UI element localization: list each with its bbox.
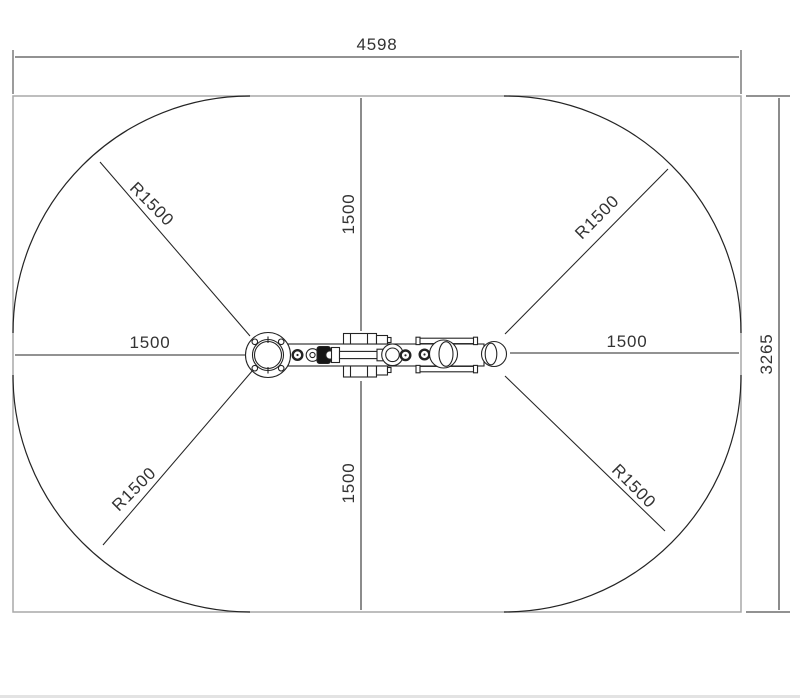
radius-line	[505, 169, 668, 334]
dimension-clearance-top: 1500	[339, 98, 361, 331]
dimension-clearance-left: 1500	[15, 333, 247, 355]
radius-label: R1500	[108, 463, 160, 515]
overall-width-label: 4598	[356, 35, 397, 54]
end-cap-ring	[482, 342, 507, 367]
overall-height-label: 3265	[757, 333, 776, 374]
clamp-block-top	[344, 334, 392, 345]
radius-line	[100, 162, 250, 336]
dimension-clearance-bottom: 1500	[339, 381, 361, 610]
clamp-block-bottom	[344, 366, 392, 377]
radius-label: R1500	[571, 191, 623, 243]
clearance-left-label: 1500	[129, 333, 170, 352]
radius-callout-top-right: R1500	[505, 169, 668, 334]
dimension-overall-height: 3265	[746, 96, 790, 612]
corner-arc-bottom-right	[504, 375, 741, 612]
coupling-cylinder	[332, 348, 340, 363]
connecting-rod	[340, 351, 380, 358]
clearance-right-label: 1500	[606, 332, 647, 351]
drawing-canvas: 4598 3265 1500 1500 1500 1500	[0, 0, 800, 698]
technical-drawing-plan-view: 4598 3265 1500 1500 1500 1500	[0, 0, 800, 698]
radius-label: R1500	[608, 460, 660, 512]
dimension-clearance-right: 1500	[510, 332, 739, 353]
dimension-overall-width: 4598	[13, 35, 741, 94]
corner-arc-top-left	[13, 96, 250, 333]
equipment-plan-view	[246, 333, 507, 378]
cylinder-ring	[430, 340, 458, 368]
pivot-flange	[246, 333, 291, 378]
radius-line	[103, 370, 253, 545]
clearance-bottom-label: 1500	[339, 462, 358, 503]
radius-line	[505, 376, 665, 531]
clearance-top-label: 1500	[339, 193, 358, 234]
radius-callout-bottom-left: R1500	[103, 370, 253, 545]
radius-callout-top-left: R1500	[100, 162, 250, 336]
radius-callout-bottom-right: R1500	[505, 376, 665, 531]
